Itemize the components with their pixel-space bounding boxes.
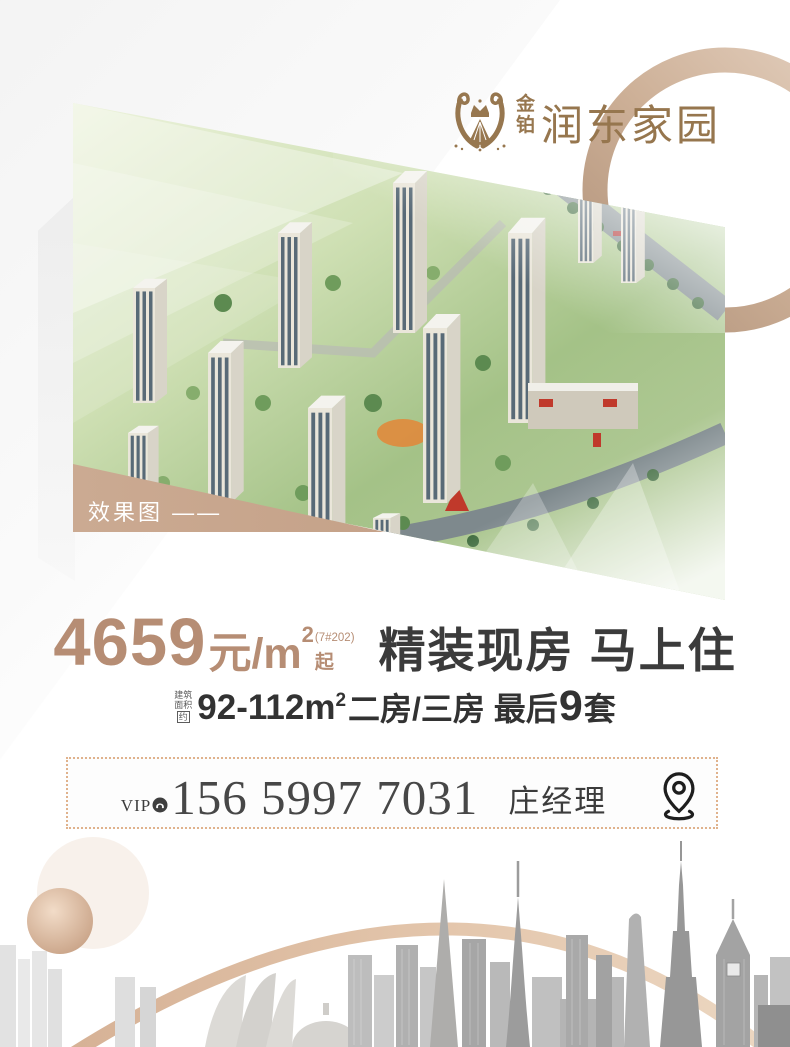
ad-poster: 效果图 ——: [0, 0, 790, 1047]
phone-number[interactable]: 156 5997 7031: [171, 773, 478, 822]
price-unit-sup: 2: [302, 622, 314, 648]
area-prefix-boxed: 约: [177, 711, 190, 723]
render-tag-label: 效果图 ——: [88, 495, 222, 527]
remaining-unit: 套: [584, 693, 616, 725]
price-note: (7#202): [315, 632, 355, 644]
area-prefix-line2: 面积: [174, 700, 192, 710]
brand-char-bottom: 铂: [516, 115, 535, 136]
price-suffix: 起: [315, 647, 334, 674]
contact-box[interactable]: VIP 156 5997 7031 庄经理: [66, 757, 718, 829]
room-types: 二房/三房 最后: [348, 693, 558, 725]
brand-char-top: 金: [516, 94, 535, 115]
phone-circle-icon: [152, 797, 168, 813]
price-unit: 元/m: [208, 635, 301, 674]
left-gray-strip: [38, 196, 75, 581]
area-prefix: 建筑 面积 约: [174, 690, 192, 723]
lyre-crown-emblem-icon: [450, 86, 510, 152]
area-prefix-line1: 建筑: [174, 690, 192, 700]
price-tail: (7#202) 起: [315, 632, 355, 674]
location-pin-icon[interactable]: [656, 769, 702, 821]
spec-row: 建筑 面积 约 92-112m 2 二房/三房 最后 9 套: [0, 688, 790, 725]
area-range: 92-112m: [197, 690, 335, 725]
price-headline: 精装现房 马上住: [379, 627, 737, 674]
project-name: 润东家园: [541, 92, 721, 153]
vip-label: VIP: [121, 796, 151, 816]
brand-logo: 金 铂 润东家园: [450, 84, 721, 153]
manager-name: 庄经理: [508, 786, 607, 817]
brand-name-stacked: 金 铂: [516, 94, 535, 136]
city-skyline-decor: [0, 827, 790, 1047]
price-row: 4659 元/m 2 (7#202) 起 精装现房 马上住: [0, 612, 790, 674]
remaining-count: 9: [559, 688, 583, 725]
price-number: 4659: [53, 612, 206, 674]
area-sup: 2: [335, 690, 346, 712]
